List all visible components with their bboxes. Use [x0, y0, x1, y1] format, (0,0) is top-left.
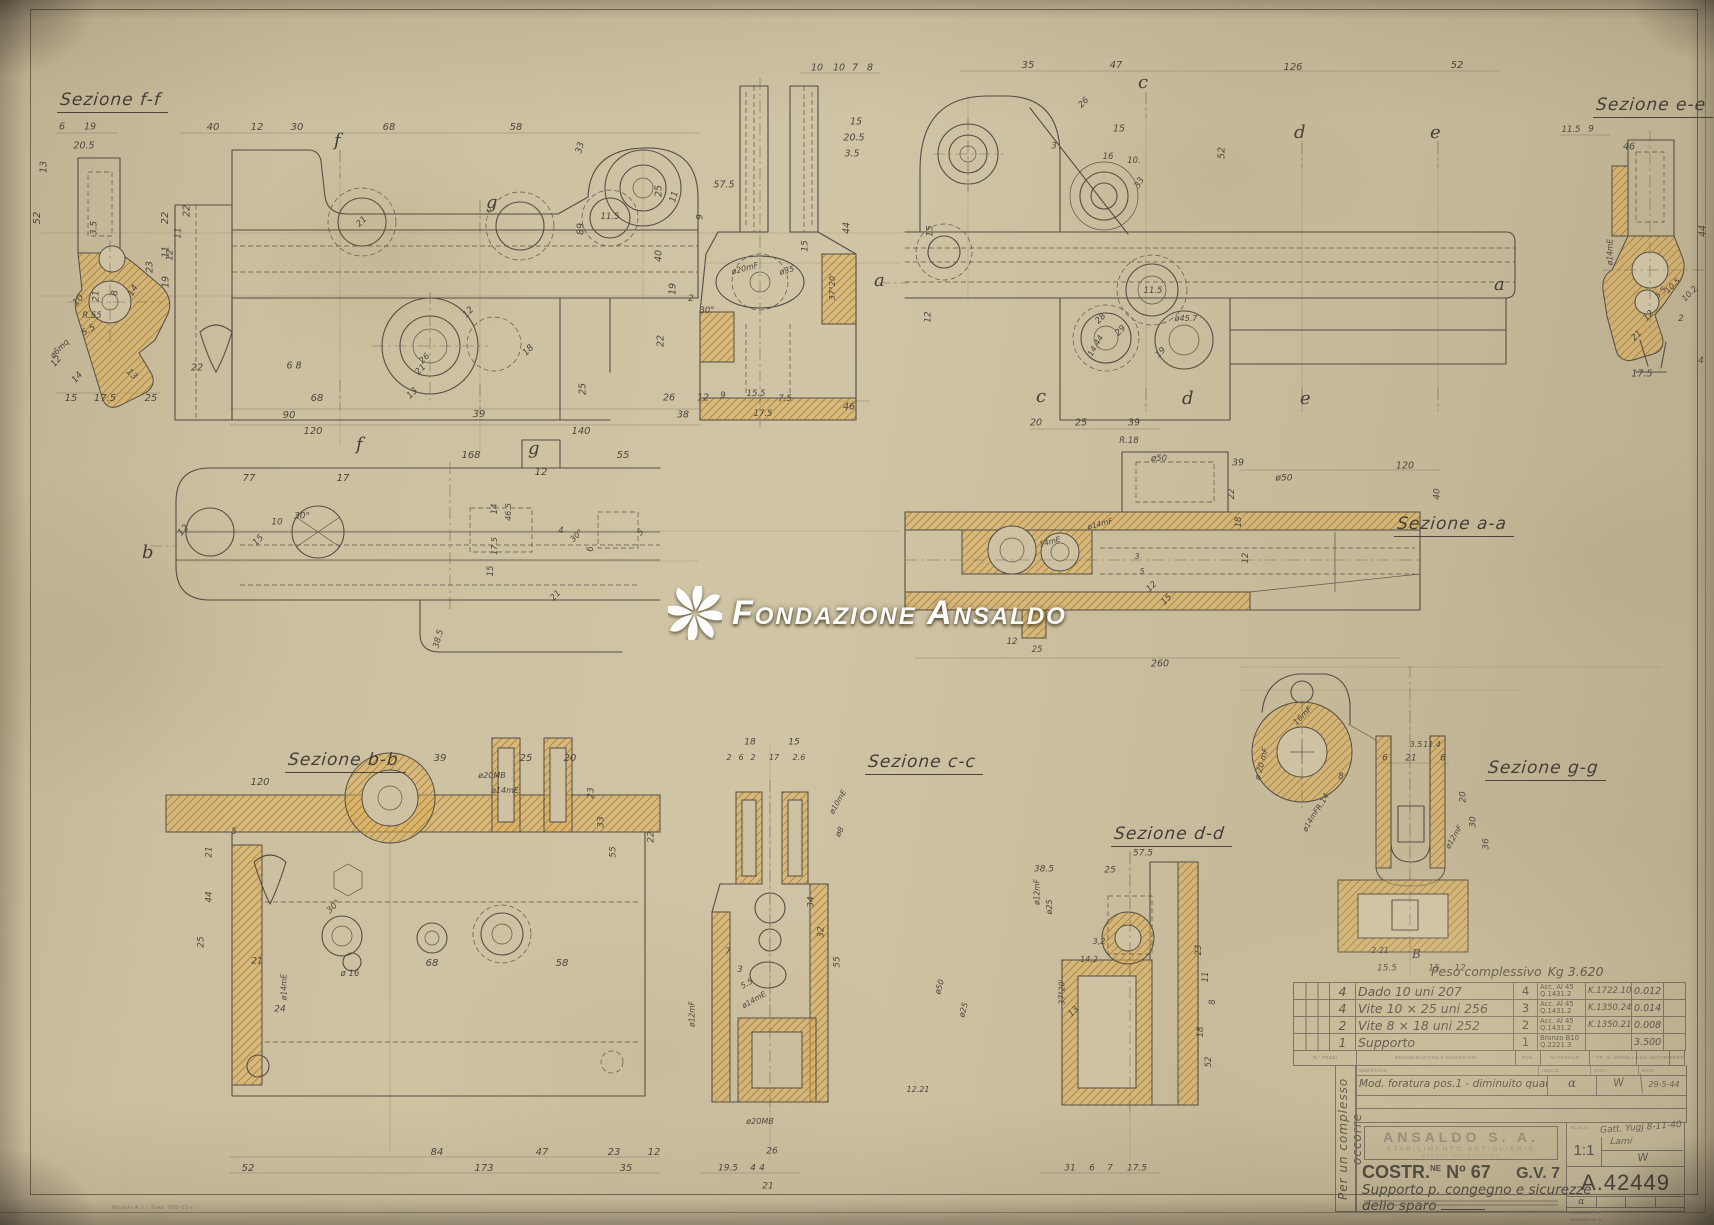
dim-label: 33 — [598, 816, 607, 827]
dim-label: 4 — [759, 1165, 765, 1174]
dim-label: 11.5 — [1144, 287, 1163, 296]
dim-label: ø20MB — [478, 772, 505, 780]
modification-text: Mod. foratura pos.1 - diminuito quant. p… — [1356, 1076, 1548, 1095]
dim-label: 24 — [274, 1006, 285, 1015]
section-label-bb: Sezione b-b — [285, 750, 408, 773]
cut-letter: d — [1294, 124, 1306, 142]
dim-label: 58 — [556, 959, 569, 969]
dim-label: 168 — [461, 451, 480, 461]
dim-label: 15.5 — [747, 390, 766, 399]
dim-label: 31 — [1064, 1165, 1075, 1174]
modification-index: α — [1548, 1076, 1597, 1095]
total-weight: Peso complessivoKg 3.620 — [1431, 964, 1604, 979]
dim-label: 47 — [1110, 61, 1123, 71]
dim-label: 15 — [927, 225, 936, 236]
dim-label: 15 — [802, 240, 811, 251]
dim-label: 8 — [867, 63, 873, 73]
mod-column-header: VISTI — [1591, 1065, 1639, 1075]
dim-label: 260 — [1151, 659, 1169, 669]
dim-label: 40 — [654, 250, 664, 262]
view-section-ee — [1602, 130, 1708, 372]
dim-label: 140 — [571, 427, 590, 437]
dim-label: 3.5 — [844, 149, 859, 159]
dim-label: 22 — [191, 363, 203, 373]
dim-label: 19 — [84, 122, 96, 132]
dim-label: ø20MB — [746, 1118, 773, 1126]
dim-label: 4 — [750, 1165, 756, 1174]
cut-letter: b — [142, 544, 154, 562]
dim-label: ø14mE — [1606, 239, 1614, 265]
dim-label: 14,2 — [1080, 956, 1098, 964]
dim-label: 2 — [750, 754, 755, 762]
dim-label: 90 — [283, 411, 296, 421]
dim-label: 17.5 — [1631, 369, 1652, 379]
dim-label: 39 — [1128, 418, 1140, 428]
section-label-cc: Sezione c-c — [865, 752, 985, 775]
dim-label: 39 — [434, 754, 447, 764]
dim-label: 15 — [850, 117, 862, 127]
dim-label: 23 — [145, 261, 155, 273]
dim-label: 8 — [112, 290, 121, 296]
dim-label: R.18 — [1119, 437, 1138, 446]
dim-label: 3 — [1051, 143, 1057, 152]
dim-label: 2 21 — [1371, 947, 1389, 955]
dim-label: 58 — [510, 123, 523, 133]
group-code: G.V. 7 — [1516, 1165, 1560, 1183]
dim-label: 23 — [1195, 945, 1204, 956]
dim-label: 6 8 — [286, 361, 301, 371]
dim-label: 25 — [1104, 867, 1115, 876]
dim-label: 55 — [617, 451, 630, 461]
cut-letter: g — [528, 440, 540, 458]
dim-label: 39 — [473, 410, 486, 420]
dim-label: 22 — [182, 205, 192, 217]
dim-label: 8 — [1209, 999, 1218, 1004]
dim-label: 6 — [587, 546, 596, 551]
dim-label: 25 — [654, 185, 664, 197]
dim-label: 2 — [688, 295, 693, 304]
parts-column-header: N.° PEZZI — [1294, 1050, 1357, 1065]
dim-label: 13 — [39, 161, 49, 173]
dim-label: 126 — [1283, 63, 1302, 73]
dim-label: ø 16 — [341, 970, 360, 979]
dim-label: 22 — [656, 335, 666, 347]
dim-label: 39 — [1232, 458, 1244, 468]
scale-label: SCALA — [1567, 1123, 1594, 1137]
dim-label: 16 — [1103, 153, 1114, 162]
dim-label: 35 — [620, 1164, 633, 1174]
dim-label: 5 — [231, 828, 236, 837]
dim-label: 7 — [725, 948, 730, 957]
dim-label: 21 — [762, 1183, 773, 1192]
dim-label: 21 — [206, 846, 215, 857]
dim-label: 21 — [1405, 755, 1416, 764]
title-block-main: ANSALDO S. A. STABILIMENTO ARTIGLIERIE G… — [1355, 1122, 1685, 1212]
cut-letter: c — [1036, 388, 1046, 406]
dim-label: 30° — [699, 307, 714, 316]
dim-label: 7 — [852, 63, 858, 73]
dim-label: 52 — [242, 1164, 255, 1174]
dim-label: 17 — [769, 754, 779, 762]
dim-label: 6 — [1382, 755, 1388, 764]
dim-label: 11.5 — [1562, 126, 1581, 135]
company-dept: STABILIMENTO ARTIGLIERIE — [1365, 1146, 1557, 1153]
dim-label: 9 — [720, 392, 725, 401]
cut-letter: g — [486, 194, 498, 212]
dim-label: 38.5 — [1034, 866, 1054, 875]
dim-label: 18 — [1235, 517, 1244, 528]
view-front — [175, 148, 698, 420]
dim-label: 7 — [1107, 1165, 1113, 1174]
dim-label: 77 — [243, 474, 256, 484]
dim-label: 68 — [311, 394, 324, 404]
dim-label: 40 — [1434, 488, 1443, 499]
dim-label: 25 — [520, 754, 533, 764]
section-label-ee: Sezione e-e — [1593, 95, 1714, 118]
dim-label: 12.21 — [907, 1086, 930, 1094]
empty-row — [1355, 1108, 1687, 1123]
dim-label: 30° — [294, 513, 310, 522]
dim-label: 4 — [558, 527, 563, 536]
view-section-gg — [1252, 666, 1468, 960]
dim-label: 10 — [833, 63, 845, 73]
cut-letter: e — [1300, 390, 1311, 408]
dim-label: 46.5 — [505, 503, 513, 521]
dim-label: 57.5 — [1133, 850, 1153, 859]
dim-label: 25 — [1075, 418, 1087, 428]
dim-label: 36 — [1483, 838, 1492, 849]
dim-label: 10 — [811, 63, 823, 73]
dim-label: 173 — [474, 1164, 493, 1174]
dim-label: 17.5 — [1127, 1165, 1147, 1174]
dim-label: ø12mF — [1033, 879, 1041, 905]
dim-label: 22 — [648, 831, 657, 842]
dim-label: 11 — [1202, 972, 1211, 983]
dim-label: 32 — [818, 926, 827, 937]
dim-label: 7.5 — [778, 395, 792, 404]
parts-table-headers: N.° PEZZIDENOMINAZIONE E DIMENSIONIPOS.M… — [1293, 1050, 1685, 1066]
dim-label: 120 — [250, 778, 269, 788]
dim-label: 12 — [1242, 553, 1251, 564]
dim-label: 20.5 — [73, 141, 94, 151]
dim-label: ø50 — [1276, 475, 1293, 484]
cut-letter: a — [1494, 276, 1505, 294]
dim-label: ø12mF — [688, 1001, 696, 1027]
dim-label: 12 — [167, 249, 176, 260]
parts-column-header: OSSERVAZ. — [1670, 1050, 1684, 1065]
dim-label: 30 — [1470, 816, 1479, 827]
dim-label: 120 — [303, 427, 322, 437]
dim-label: 21 — [251, 958, 262, 967]
modification-row: Mod. foratura pos.1 - diminuito quant. p… — [1355, 1075, 1687, 1096]
section-label-ff: Sezione f-f — [57, 90, 170, 113]
dim-label: 44 — [206, 891, 215, 902]
dim-label: 12 — [535, 468, 548, 478]
watermark-text: Fondazione Ansaldo — [732, 594, 1067, 633]
cut-letter: f — [356, 436, 363, 454]
dim-label: 89 — [576, 223, 586, 235]
dim-label: 25 — [145, 394, 158, 404]
dim-label: ø45.7 — [1175, 315, 1198, 323]
section-label-gg: Sezione g-g — [1485, 758, 1608, 781]
dim-label: 52 — [33, 212, 43, 225]
dim-label: 14 — [491, 504, 500, 515]
dim-label: 22 — [1228, 489, 1237, 500]
dim-label: 52 — [1451, 61, 1464, 71]
dim-label: ø25 — [1046, 899, 1054, 914]
mod-column-header: INDICE — [1539, 1065, 1591, 1075]
dim-label: 2 — [726, 754, 731, 762]
view-top-center — [700, 78, 856, 428]
view-section-dd — [1062, 852, 1198, 1112]
dim-label: 20 — [564, 754, 577, 764]
supersedes-notes: Sostituisce il N. Sostituita dal N. — [1567, 1208, 1684, 1225]
dim-label: 23 — [608, 1148, 621, 1158]
dim-label: 37°20' — [829, 274, 837, 301]
title-block: Peso complessivoKg 3.620 4Dado 10 uni 20… — [1293, 962, 1685, 1212]
watermark: Fondazione Ansaldo — [668, 586, 1067, 640]
scale-value: 1:1 — [1567, 1137, 1602, 1166]
cut-letter: a — [874, 272, 885, 290]
dim-label: 46 — [1623, 142, 1635, 152]
dim-label: 26 — [663, 393, 675, 403]
company-name: ANSALDO S. A. — [1365, 1129, 1557, 1145]
dim-label: 38 — [677, 410, 689, 420]
ansaldo-pinwheel-icon — [668, 586, 722, 640]
dim-label: 25 — [578, 383, 588, 395]
revision-row: α — [1567, 1197, 1684, 1208]
dim-label: 120 — [1396, 461, 1414, 471]
dim-label: 55 — [610, 846, 619, 857]
dim-label: 20 — [1460, 791, 1469, 802]
dim-label: 15 — [788, 739, 799, 748]
dim-label: 15 — [1113, 124, 1125, 134]
modification-date: 29-5-44 — [1642, 1076, 1686, 1095]
dim-label: 57.5 — [713, 180, 734, 190]
scanned-drawing-photo: Sezione f-fSezione e-eSezione a-aSezione… — [0, 0, 1714, 1225]
cut-letter: f — [334, 132, 341, 150]
company-block: ANSALDO S. A. STABILIMENTO ARTIGLIERIE G… — [1364, 1126, 1558, 1160]
view-section-ff — [68, 158, 170, 407]
dim-label: 4 — [1698, 357, 1703, 366]
parts-table: 4Dado 10 uni 2074Acc. Al 45Q.1431.2K.172… — [1293, 982, 1686, 1051]
dim-label: 12 — [648, 1148, 661, 1158]
dim-label: 19.5 — [718, 1165, 738, 1174]
form-stamp: Modulo A.1 - Stab. 905-13 c — [112, 1205, 194, 1211]
dim-label: 11.5 — [601, 213, 620, 222]
dim-label: 3 — [1134, 553, 1139, 561]
parts-column-header: N.° TR. G. MODELLO — [1590, 1050, 1637, 1065]
view-plan — [150, 440, 660, 652]
dim-label: 25 — [1032, 646, 1043, 655]
dim-label: 37°20' — [1058, 980, 1066, 1005]
dim-label: 9 — [697, 214, 706, 220]
dim-label: 52 — [1217, 147, 1227, 159]
dim-label: 20 — [1030, 418, 1042, 428]
dim-label: ø14mE — [491, 787, 519, 795]
scale-box: SCALA Gatt. Yugj 8-11-40 1:1 Lami W — [1567, 1123, 1684, 1167]
dim-label: 25 — [198, 936, 207, 947]
dim-label: 9 — [1588, 126, 1594, 135]
dim-label: 46 — [843, 402, 855, 412]
side-note: Per un complesso occorre — [1335, 1065, 1357, 1212]
dim-label: 68 — [383, 123, 396, 133]
revision-index: α — [1567, 1197, 1597, 1207]
parts-column-header: PESO UNITARIO — [1637, 1050, 1670, 1065]
parts-row: 4Dado 10 uni 2074Acc. Al 45Q.1431.2K.172… — [1294, 983, 1686, 1000]
dim-label: 15 — [487, 566, 496, 577]
dim-label: 55 — [834, 956, 843, 967]
parts-row: 4Vite 10 × 25 uni 2563Acc. Al 45Q.1431.2… — [1294, 1000, 1686, 1017]
dim-label: 20.5 — [843, 133, 864, 143]
dim-label: 35 — [1022, 61, 1035, 71]
dim-label: 2 — [1678, 315, 1683, 324]
dim-label: 18 — [744, 739, 755, 748]
dim-label: 21 — [93, 290, 102, 301]
cut-letter: c — [1138, 74, 1148, 92]
dim-label: 44 — [1698, 225, 1708, 237]
fine-print — [1364, 1198, 1558, 1208]
dim-label: 34 — [808, 896, 817, 907]
section-label-aa: Sezione a-a — [1394, 514, 1516, 537]
dim-label: 47 — [536, 1148, 549, 1158]
dim-label: 12 — [697, 393, 709, 403]
company-city: GENOVA-CORNIGLIANO — [1365, 1153, 1557, 1158]
dim-label: 6 — [59, 122, 65, 132]
dim-label: 11 — [175, 227, 184, 238]
dim-label: 17 — [337, 474, 350, 484]
dim-label: ø14mE — [280, 974, 288, 1000]
costr-line: COSTR.NE Nº 67 G.V. 7 — [1356, 1161, 1566, 1183]
drawing-sheet: Sezione f-fSezione e-eSezione a-aSezione… — [0, 0, 1714, 1225]
cut-letter: B — [1412, 948, 1421, 960]
dim-label: 26 — [766, 1148, 777, 1157]
dim-label: 10. — [1127, 157, 1141, 166]
dim-label: 6 — [1089, 1165, 1095, 1174]
cut-letter: e — [1430, 124, 1441, 142]
parts-column-header: POS. — [1516, 1050, 1541, 1065]
view-top-right — [878, 92, 1515, 420]
dim-label: 30 — [291, 123, 304, 133]
dim-label: 44 — [842, 222, 852, 234]
dim-label: 3.5 — [1410, 741, 1423, 749]
dim-label: 3.5 — [91, 221, 100, 235]
section-label-dd: Sezione d-d — [1111, 824, 1234, 847]
dim-label: R.55 — [82, 312, 101, 321]
dim-label: 6 — [738, 754, 743, 762]
empty-row — [1355, 1094, 1687, 1109]
dim-label: 68 — [426, 959, 439, 969]
dim-label: 19 — [668, 283, 678, 295]
dim-label: 23 — [588, 787, 597, 798]
dim-label: 3 — [737, 966, 742, 975]
dim-label: 12 — [925, 311, 934, 322]
dim-label: 12 — [251, 123, 264, 133]
dim-label: 11.4 — [1423, 741, 1441, 749]
dim-label: 84 — [431, 1148, 444, 1158]
dim-label: 17.5 — [491, 537, 499, 555]
parts-row: 2Vite 8 × 18 uni 2522Acc. Al 45Q.1431.2K… — [1294, 1017, 1686, 1034]
mod-column-header: MODIFICHE — [1356, 1065, 1539, 1075]
parts-column-header: MATERIALE — [1541, 1050, 1590, 1065]
dim-label: ø50 — [1151, 455, 1167, 464]
parts-row: 1Supporto1Bronzo B10Q.2221.33.500 — [1294, 1034, 1686, 1051]
dim-label: 5 — [1139, 568, 1144, 576]
dim-label: 10 — [271, 519, 282, 528]
cut-letter: d — [1182, 390, 1194, 408]
dim-label: 8 — [1338, 773, 1343, 782]
dim-label: 19 — [161, 276, 171, 288]
dim-label: 3,2 — [1093, 938, 1106, 946]
mod-column-header: DATA — [1639, 1065, 1686, 1075]
dim-label: 17.5 — [754, 410, 773, 419]
dim-label: 17.5 — [94, 394, 116, 404]
dim-label: 22 — [161, 212, 171, 225]
parts-column-header: DENOMINAZIONE E DIMENSIONI — [1357, 1050, 1516, 1065]
dim-label: 52 — [1205, 1057, 1214, 1068]
dim-label: 40 — [207, 123, 220, 133]
dim-label: 15 — [65, 394, 78, 404]
dim-label: 6 — [1440, 755, 1446, 764]
dim-label: 2.6 — [793, 754, 806, 762]
dim-label: 18 — [1197, 1027, 1206, 1038]
